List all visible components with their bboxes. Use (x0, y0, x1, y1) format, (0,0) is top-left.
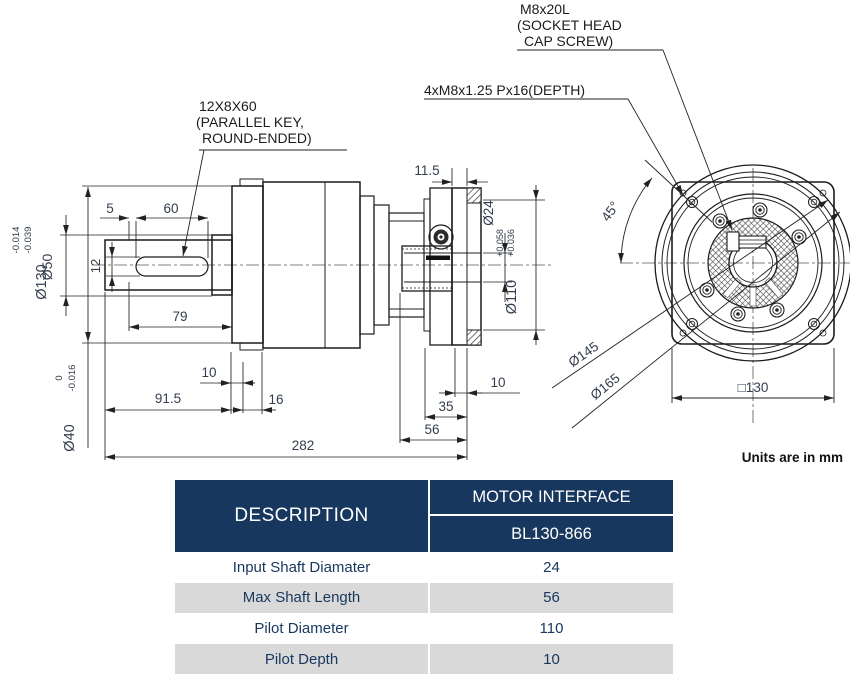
flange-hatch-top (467, 188, 481, 203)
screw-callout-line3: CAP SCREW) (524, 33, 613, 49)
side-view (105, 179, 481, 350)
motor-interface-label: MOTOR INTERFACE (430, 480, 673, 516)
flange-hatch-bottom (467, 330, 481, 345)
dim-282: 282 (292, 438, 315, 453)
row-value: 24 (428, 552, 673, 583)
dim-dia110-tol-lower: +0.036 (506, 229, 516, 257)
dim-10-left: 10 (201, 365, 216, 380)
dim-dia130-tol-lower: -0.039 (23, 227, 34, 254)
key-callout-line3: ROUND-ENDED) (202, 130, 312, 146)
shaft-keyway-slot (136, 257, 208, 276)
row-label: Max Shaft Length (175, 583, 428, 614)
dim-35: 35 (438, 399, 453, 414)
dim-dia165: Ø165 (588, 370, 623, 402)
units-note: Units are in mm (742, 450, 843, 465)
dim-dia110: Ø110 (504, 280, 520, 314)
dim-56: 56 (424, 422, 439, 437)
dim-12: 12 (88, 259, 103, 273)
row-value: 110 (428, 613, 673, 644)
key-callout-line2: (PARALLEL KEY, (196, 114, 304, 130)
technical-drawing: 5 60 12 Ø50 Ø130 -0.014 -0.039 Ø40 0 -0.… (0, 0, 850, 478)
side-dimensions (60, 168, 545, 460)
table-row: Input Shaft Diamater 24 (175, 552, 673, 583)
interface-header-cell: MOTOR INTERFACE BL130-866 (428, 480, 673, 552)
dia145-leader (552, 200, 828, 388)
bore-keyway (727, 232, 739, 251)
dim-dia130: Ø130 (34, 264, 50, 299)
dim-10-right: 10 (490, 375, 505, 390)
screw-callout-line2: (SOCKET HEAD (517, 17, 622, 33)
input-key (426, 256, 450, 261)
row-value: 10 (428, 644, 673, 675)
row-value: 56 (428, 583, 673, 614)
dim-square130: □130 (738, 380, 769, 395)
table-row: Pilot Diameter 110 (175, 613, 673, 644)
tap-callout: 4xM8x1.25 Px16(DEPTH) (424, 82, 585, 98)
adapter-plate (430, 188, 452, 345)
dim-60: 60 (163, 201, 178, 216)
side-dimension-labels: 5 60 12 Ø50 Ø130 -0.014 -0.039 Ø40 0 -0.… (11, 163, 520, 453)
dim-dia110-tol-upper: +0.058 (495, 229, 505, 257)
spec-table: DESCRIPTION MOTOR INTERFACE BL130-866 In… (175, 480, 673, 674)
row-label: Pilot Depth (175, 644, 428, 675)
gearbox-datasheet-page: 5 60 12 Ø50 Ø130 -0.014 -0.039 Ø40 0 -0.… (0, 0, 850, 676)
screw-callout-line1: M8x20L (520, 1, 570, 17)
parallel-key (739, 236, 766, 248)
dim-45deg: 45° (598, 199, 622, 224)
output-flange (232, 186, 263, 343)
dim-dia40-tol-upper: 0 (54, 375, 65, 380)
table-row: Max Shaft Length 56 (175, 583, 673, 614)
dim-16: 16 (268, 392, 283, 407)
dim-91-5: 91.5 (155, 391, 181, 406)
dim-dia145: Ø145 (566, 339, 602, 370)
dim-dia24: Ø24 (481, 200, 496, 226)
key-callout-line1: 12X8X60 (199, 98, 257, 114)
dim-dia40-tol-lower: -0.016 (67, 365, 78, 392)
row-label: Input Shaft Diamater (175, 552, 428, 583)
dia165-leader (572, 212, 840, 428)
dim-11-5: 11.5 (414, 163, 439, 178)
angle-45-arc (621, 178, 652, 263)
dim-dia130-tol-upper: -0.014 (11, 227, 22, 254)
description-header-cell: DESCRIPTION (175, 480, 428, 552)
dim-5: 5 (106, 201, 114, 216)
dim-dia40: Ø40 (62, 424, 78, 451)
table-row: Pilot Depth 10 (175, 644, 673, 675)
callouts: 12X8X60 (PARALLEL KEY, ROUND-ENDED) M8x2… (183, 1, 732, 256)
model-label: BL130-866 (430, 516, 673, 552)
dim-79: 79 (172, 309, 187, 324)
table-header: DESCRIPTION MOTOR INTERFACE BL130-866 (175, 480, 673, 552)
row-label: Pilot Diameter (175, 613, 428, 644)
